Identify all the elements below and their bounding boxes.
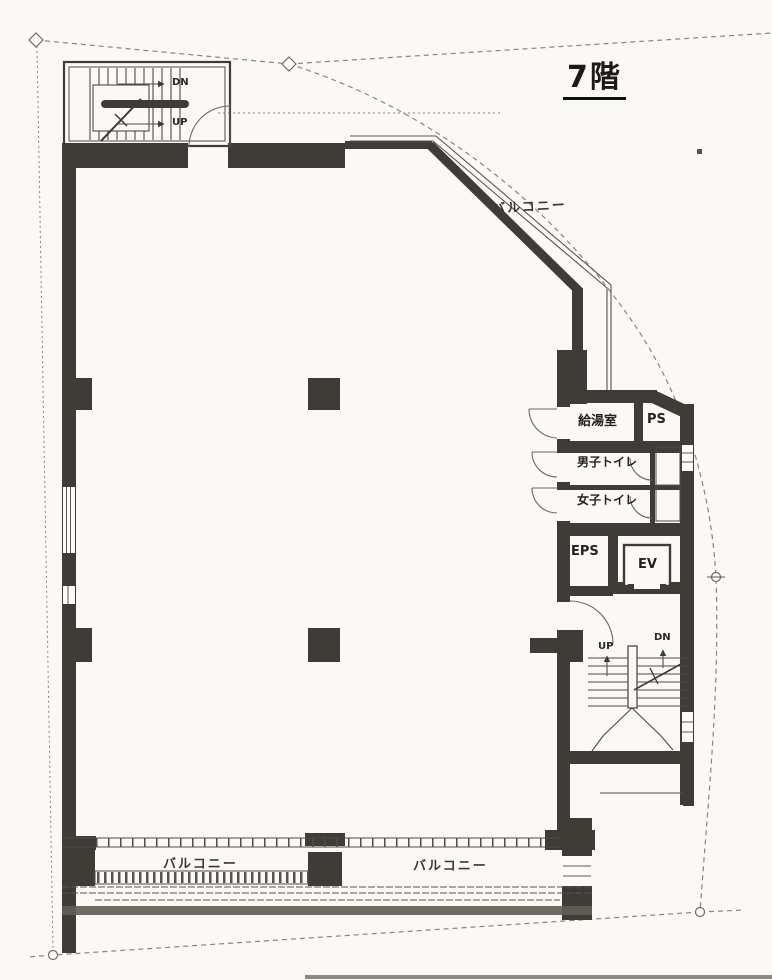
survey-marker-bottom-right	[696, 908, 705, 917]
walls	[62, 141, 694, 953]
scan-edge-artifact	[305, 975, 772, 979]
balcony-edge-band	[62, 906, 592, 915]
stair-break-line	[634, 664, 681, 690]
staircase-top	[64, 62, 230, 147]
column	[308, 628, 340, 662]
label-stair-bottom-up: UP	[598, 641, 613, 652]
label-eps: EPS	[571, 544, 599, 559]
survey-marker-right-top	[697, 149, 702, 154]
label-stair-bottom-dn: DN	[654, 632, 671, 643]
stair-landing-rail	[101, 100, 189, 108]
page-title: 7階	[563, 52, 626, 100]
survey-marker-top-left	[29, 33, 43, 47]
label-balcony-bottom-right: バルコニー	[413, 855, 488, 874]
label-balcony-bottom-left: バルコニー	[163, 853, 238, 872]
label-kitchenette: 給湯室	[578, 410, 617, 429]
floor-plan-drawing	[0, 0, 772, 980]
survey-marker-bottom-left	[49, 951, 58, 960]
label-stair-top-up: UP	[172, 117, 187, 128]
site-boundary-lines	[28, 33, 772, 979]
label-pipe-shaft: PS	[647, 412, 666, 427]
label-elevator: EV	[638, 557, 657, 572]
toilet-compartment	[656, 447, 680, 521]
label-balcony-top: バルコニー	[492, 194, 568, 217]
floor-plan-7f: 7階 バルコニー 給湯室 PS 男子トイレ 女子トイレ EPS EV DN UP…	[0, 0, 772, 980]
label-womens-toilet: 女子トイレ	[577, 491, 637, 508]
label-stair-top-dn: DN	[172, 77, 189, 88]
label-mens-toilet: 男子トイレ	[577, 453, 637, 470]
column	[308, 378, 340, 410]
survey-marker-top-mid	[282, 57, 296, 71]
staircase-bottom	[588, 646, 688, 751]
